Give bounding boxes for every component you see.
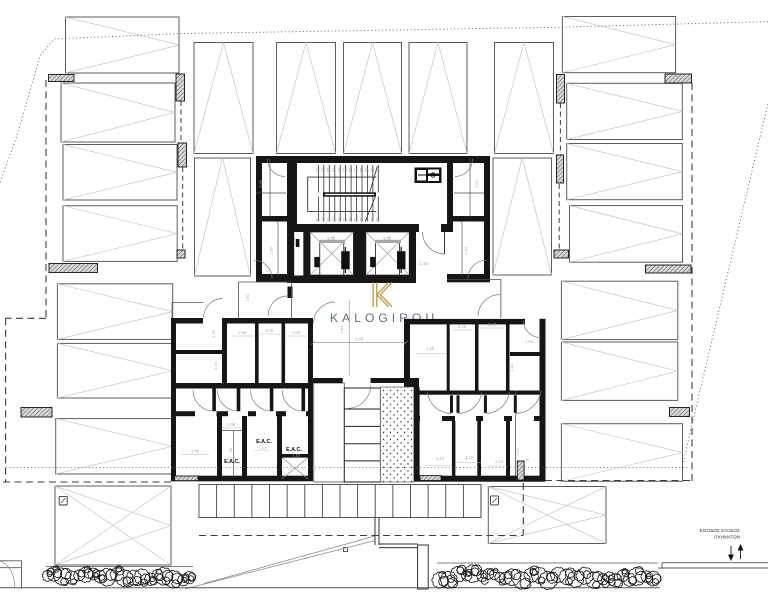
svg-text:1.00: 1.00 <box>339 325 344 334</box>
svg-text:2.50: 2.50 <box>474 179 479 188</box>
svg-text:2.50: 2.50 <box>464 246 469 255</box>
svg-text:1.05: 1.05 <box>292 330 301 335</box>
svg-text:90: 90 <box>228 447 233 452</box>
svg-text:E.A.C.: E.A.C. <box>286 447 302 453</box>
svg-text:3.80: 3.80 <box>355 337 364 342</box>
svg-text:E.A.C.: E.A.C. <box>224 459 240 465</box>
svg-text:1.55: 1.55 <box>525 339 534 344</box>
svg-text:E.A.C.: E.A.C. <box>256 439 272 445</box>
svg-text:1.10: 1.10 <box>436 456 445 461</box>
svg-text:1.10: 1.10 <box>292 454 299 458</box>
svg-text:1.10: 1.10 <box>465 455 474 460</box>
svg-text:1.90: 1.90 <box>327 236 336 241</box>
svg-text:2.50: 2.50 <box>258 179 263 188</box>
svg-text:1.10: 1.10 <box>495 459 504 464</box>
svg-text:1.50: 1.50 <box>420 261 429 266</box>
svg-text:ΕΙΣΟΔΟΣ ΕΞΟΔΟΣ: ΕΙΣΟΔΟΣ ΕΞΟΔΟΣ <box>700 528 740 533</box>
svg-text:1.10: 1.10 <box>509 363 514 372</box>
svg-text:2.50: 2.50 <box>269 246 274 255</box>
svg-text:1.40: 1.40 <box>258 447 265 451</box>
svg-text:1.25: 1.25 <box>211 329 216 338</box>
svg-text:1.20: 1.20 <box>426 346 435 351</box>
svg-text:1.20: 1.20 <box>213 361 218 370</box>
svg-text:1.80: 1.80 <box>191 449 200 454</box>
svg-text:1.10: 1.10 <box>488 322 497 327</box>
svg-text:1.90: 1.90 <box>383 236 392 241</box>
svg-text:1.10: 1.10 <box>458 324 467 329</box>
svg-text:ΟΧΗΜΑΤΩΝ: ΟΧΗΜΑΤΩΝ <box>714 535 740 540</box>
svg-text:1.50: 1.50 <box>245 293 250 302</box>
svg-text:90: 90 <box>525 458 529 462</box>
svg-text:1.00: 1.00 <box>227 422 236 427</box>
svg-text:1.05: 1.05 <box>265 328 274 333</box>
svg-text:1.05: 1.05 <box>238 330 247 335</box>
svg-text:2.60: 2.60 <box>515 447 520 456</box>
